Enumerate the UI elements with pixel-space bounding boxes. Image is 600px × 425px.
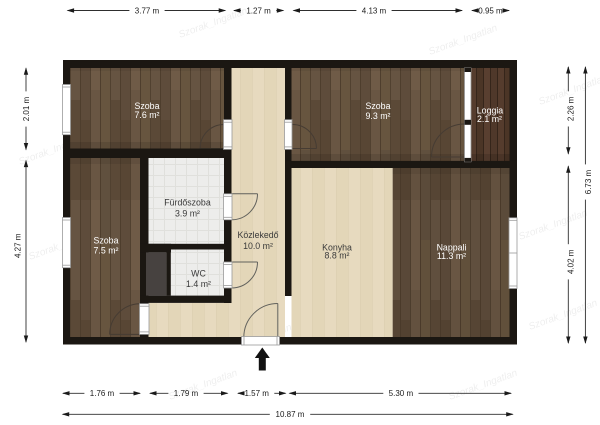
svg-text:10.87 m: 10.87 m (276, 410, 305, 419)
svg-text:4.27 m: 4.27 m (13, 233, 22, 258)
svg-text:8.8 m²: 8.8 m² (325, 251, 350, 261)
svg-text:3.77 m: 3.77 m (135, 6, 160, 15)
svg-text:Fürdőszoba: Fürdőszoba (164, 198, 211, 208)
svg-text:1.79 m: 1.79 m (174, 389, 199, 398)
svg-text:6.73 m: 6.73 m (584, 169, 593, 194)
svg-text:1.57 m: 1.57 m (244, 389, 269, 398)
svg-text:Szoba: Szoba (94, 236, 119, 246)
svg-text:1.76 m: 1.76 m (90, 389, 115, 398)
svg-text:4.02 m: 4.02 m (567, 249, 576, 274)
svg-text:Szoba: Szoba (366, 101, 391, 111)
svg-text:1.4 m²: 1.4 m² (186, 279, 211, 289)
svg-text:0.95 m: 0.95 m (478, 6, 503, 15)
svg-text:WC: WC (191, 269, 206, 279)
svg-text:7.6 m²: 7.6 m² (135, 110, 160, 120)
svg-text:11.3 m²: 11.3 m² (437, 251, 466, 261)
svg-text:9.3 m²: 9.3 m² (366, 111, 391, 121)
svg-text:2.1 m²: 2.1 m² (477, 114, 502, 124)
svg-text:5.30 m: 5.30 m (389, 389, 414, 398)
svg-text:2.26 m: 2.26 m (567, 96, 576, 121)
svg-text:7.5 m²: 7.5 m² (94, 246, 119, 256)
svg-text:Közlekedő: Közlekedő (237, 230, 278, 240)
svg-text:3.9 m²: 3.9 m² (175, 209, 200, 219)
svg-text:2.01 m: 2.01 m (22, 96, 31, 121)
svg-text:10.0 m²: 10.0 m² (243, 241, 273, 251)
svg-text:4.13 m: 4.13 m (362, 6, 387, 15)
svg-text:1.27 m: 1.27 m (246, 6, 271, 15)
